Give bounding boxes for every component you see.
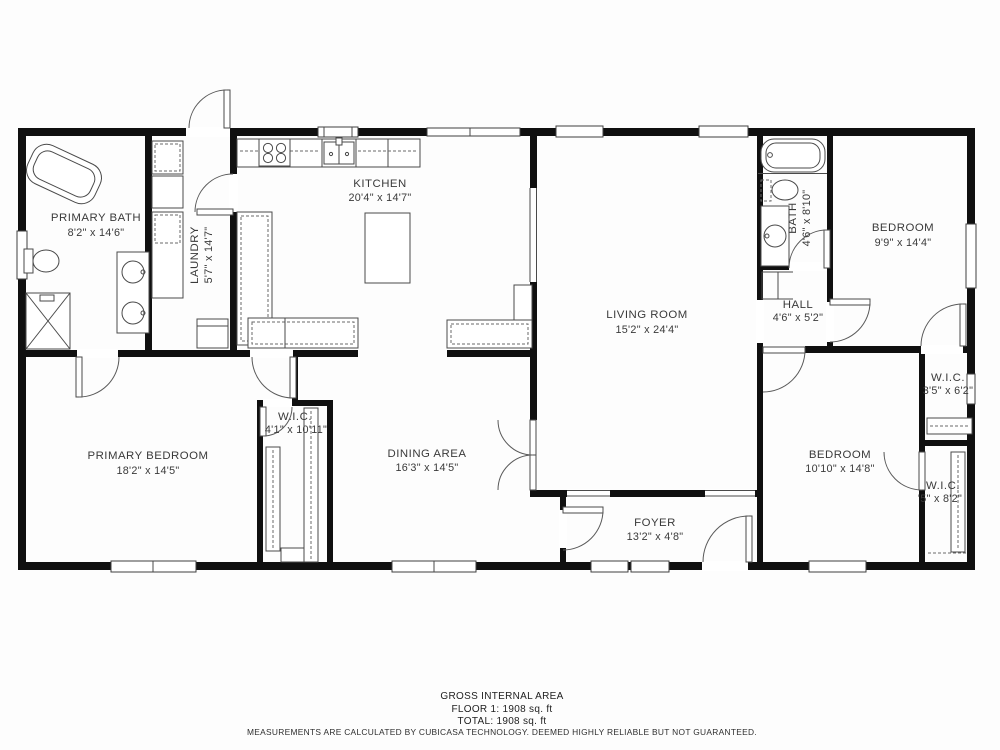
toilet-tank-icon bbox=[24, 249, 33, 273]
bedroom-top-door bbox=[830, 299, 870, 305]
room-dims-bedroom-top: 9'9" x 14'4" bbox=[875, 237, 932, 249]
room-labels: PRIMARY BATH 8'2" x 14'6" LAUNDRY 5'7" x… bbox=[51, 178, 973, 543]
footer-disclaimer: MEASUREMENTS ARE CALCULATED BY CUBICASA … bbox=[247, 727, 757, 737]
room-label-dining: DINING AREA bbox=[388, 448, 467, 460]
vanity-icon bbox=[117, 252, 149, 333]
room-dims-laundry: 5'7" x 14'7" bbox=[203, 227, 215, 284]
floor-plan-page: PRIMARY BATH 8'2" x 14'6" LAUNDRY 5'7" x… bbox=[0, 0, 1000, 750]
cabinet-icon bbox=[152, 176, 183, 208]
primary-bedroom-door bbox=[76, 357, 82, 397]
wic-top-door bbox=[960, 304, 966, 346]
wic-top-interior bbox=[927, 418, 972, 434]
room-label-laundry: LAUNDRY bbox=[189, 226, 201, 284]
room-dims-primary-bath: 8'2" x 14'6" bbox=[68, 227, 125, 239]
room-dims-bath: 4'6" x 8'10" bbox=[801, 190, 813, 247]
room-label-bedroom-bottom: BEDROOM bbox=[809, 449, 871, 461]
room-dims-bedroom-bottom: 10'10" x 14'8" bbox=[805, 463, 874, 475]
footer: GROSS INTERNAL AREA FLOOR 1: 1908 sq. ft… bbox=[247, 691, 757, 737]
room-label-bedroom-top: BEDROOM bbox=[872, 222, 934, 234]
room-dims-hall: 4'6" x 5'2" bbox=[773, 312, 824, 324]
french-door-lower bbox=[530, 455, 536, 490]
exterior-door-top bbox=[224, 90, 230, 128]
room-label-hall: HALL bbox=[783, 299, 814, 311]
room-label-wic-top: W.I.C. bbox=[931, 372, 965, 384]
footer-floor-area: FLOOR 1: 1908 sq. ft bbox=[451, 704, 552, 715]
room-label-foyer: FOYER bbox=[634, 517, 676, 529]
room-dims-dining: 16'3" x 14'5" bbox=[395, 462, 458, 474]
footer-gross-area: GROSS INTERNAL AREA bbox=[440, 691, 563, 702]
bathtub-icon bbox=[761, 139, 825, 172]
room-label-bath: BATH bbox=[787, 202, 799, 234]
room-dims-wic-bottom: '5" x 8'2" bbox=[918, 493, 962, 505]
room-dims-living-room: 15'2" x 24'4" bbox=[615, 324, 678, 336]
kitchen-island bbox=[365, 213, 410, 283]
front-door bbox=[746, 516, 752, 562]
primary-bath-fixtures bbox=[22, 139, 149, 349]
cabinet-icon bbox=[152, 141, 183, 174]
room-dims-foyer: 13'2" x 4'8" bbox=[627, 531, 684, 543]
washer-icon bbox=[197, 319, 228, 348]
stove-icon bbox=[259, 139, 290, 166]
room-label-living-room: LIVING ROOM bbox=[606, 309, 687, 321]
toilet-icon bbox=[772, 180, 798, 200]
bath-door bbox=[824, 230, 830, 268]
footer-total-area: TOTAL: 1908 sq. ft bbox=[458, 716, 547, 727]
toilet-icon bbox=[33, 250, 59, 272]
room-label-primary-bedroom: PRIMARY BEDROOM bbox=[87, 450, 208, 462]
shelf-icon bbox=[281, 548, 304, 562]
room-dims-kitchen: 20'4" x 14'7" bbox=[348, 192, 411, 204]
french-door-upper bbox=[530, 420, 536, 455]
cased-openings bbox=[529, 188, 764, 498]
floor-plan-svg: PRIMARY BATH 8'2" x 14'6" LAUNDRY 5'7" x… bbox=[0, 0, 1000, 750]
kitchen-counter bbox=[514, 285, 532, 320]
bedroom-bottom-door bbox=[763, 347, 805, 353]
foyer-side-door bbox=[563, 507, 603, 513]
laundry-door bbox=[197, 209, 233, 215]
closet-icon bbox=[152, 212, 183, 298]
kitchen-fixtures bbox=[237, 138, 532, 348]
hall-closet bbox=[762, 272, 793, 299]
room-dims-primary-bedroom: 18'2" x 14'5" bbox=[116, 465, 179, 477]
bathtub-icon bbox=[22, 139, 107, 208]
room-label-wic-primary: W.I.C. bbox=[278, 411, 312, 423]
room-label-primary-bath: PRIMARY BATH bbox=[51, 212, 141, 224]
wic-bottom-door bbox=[919, 452, 925, 490]
room-dims-wic-primary: 4'1" x 10'11" bbox=[265, 424, 327, 436]
primary-suite-door bbox=[290, 357, 296, 398]
room-label-wic-bottom: W.I.C. bbox=[926, 480, 960, 492]
room-dims-wic-top: 3'5" x 6'2" bbox=[923, 385, 974, 397]
room-label-kitchen: KITCHEN bbox=[353, 178, 407, 190]
